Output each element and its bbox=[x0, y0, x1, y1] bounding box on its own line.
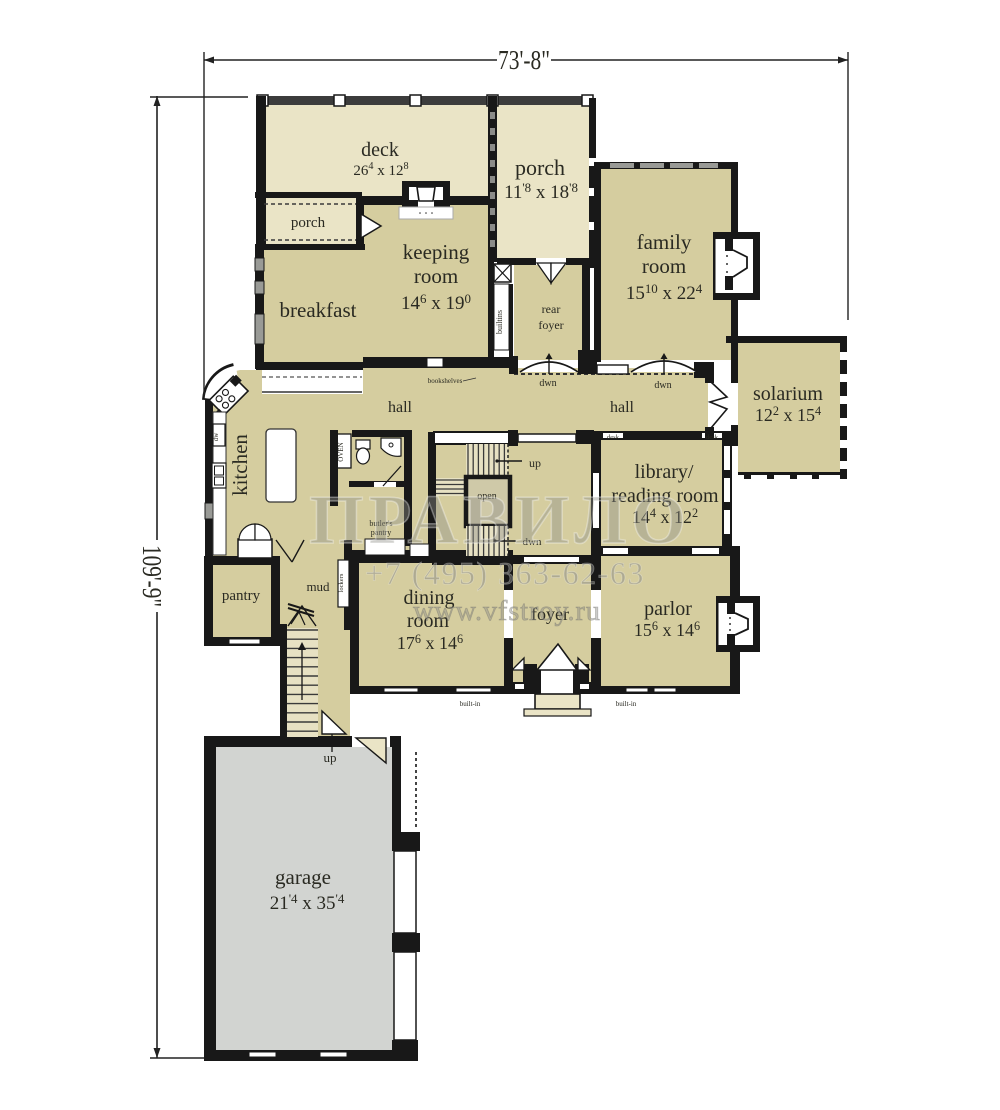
svg-text:built-in: built-in bbox=[460, 700, 481, 708]
svg-text:up: up bbox=[529, 456, 541, 470]
svg-text:desk: desk bbox=[607, 434, 620, 441]
svg-text:family: family bbox=[637, 230, 692, 254]
svg-text:73'-8": 73'-8" bbox=[498, 45, 550, 75]
svg-text:122 x 154: 122 x 154 bbox=[755, 404, 821, 425]
svg-text:mud: mud bbox=[306, 579, 330, 594]
svg-text:rear: rear bbox=[542, 302, 561, 316]
svg-text:109'-9": 109'-9" bbox=[137, 545, 167, 607]
svg-text:bookshelves: bookshelves bbox=[428, 377, 463, 385]
svg-text:foyer: foyer bbox=[538, 318, 563, 332]
svg-text:room: room bbox=[642, 254, 686, 278]
svg-text:porch: porch bbox=[515, 155, 565, 180]
svg-text:156 x 146: 156 x 146 bbox=[634, 619, 700, 640]
svg-text:lockers: lockers bbox=[338, 573, 345, 592]
svg-text:solarium: solarium bbox=[753, 383, 823, 405]
svg-text:built-in: built-in bbox=[616, 700, 637, 708]
svg-text:pantry: pantry bbox=[222, 588, 261, 604]
svg-text:builtins: builtins bbox=[495, 310, 504, 334]
svg-text:keeping: keeping bbox=[403, 240, 470, 264]
svg-text:264 x 128: 264 x 128 bbox=[353, 161, 408, 179]
svg-text:www.vfstroy.ru: www.vfstroy.ru bbox=[413, 596, 601, 627]
svg-text:dwn: dwn bbox=[654, 380, 671, 391]
svg-text:176 x 146: 176 x 146 bbox=[397, 632, 463, 653]
svg-text:garage: garage bbox=[275, 865, 331, 889]
svg-text:hall: hall bbox=[388, 399, 413, 416]
svg-text:1510 x 224: 1510 x 224 bbox=[626, 281, 703, 304]
svg-text:up: up bbox=[324, 750, 337, 765]
svg-text:parlor: parlor bbox=[644, 598, 692, 620]
svg-text:room: room bbox=[414, 264, 458, 288]
svg-text:OVEN: OVEN bbox=[337, 442, 345, 461]
svg-text:21'4 x 35'4: 21'4 x 35'4 bbox=[270, 891, 345, 914]
svg-text:hall: hall bbox=[610, 399, 635, 416]
svg-text:+7 (495) 363-62-63: +7 (495) 363-62-63 bbox=[365, 555, 645, 591]
svg-text:11'8 x 18'8: 11'8 x 18'8 bbox=[504, 180, 578, 203]
svg-text:dw: dw bbox=[212, 432, 220, 442]
svg-text:library/: library/ bbox=[635, 461, 694, 483]
svg-text:kitchen: kitchen bbox=[228, 434, 252, 496]
svg-text:ПРАВИЛО: ПРАВИЛО bbox=[309, 482, 691, 559]
svg-text:porch: porch bbox=[291, 215, 326, 231]
svg-text:146 x 190: 146 x 190 bbox=[401, 291, 471, 314]
svg-text:breakfast: breakfast bbox=[280, 298, 357, 322]
svg-text:desk: desk bbox=[706, 434, 719, 441]
svg-text:deck: deck bbox=[361, 139, 399, 161]
svg-text:dwn: dwn bbox=[539, 378, 556, 389]
